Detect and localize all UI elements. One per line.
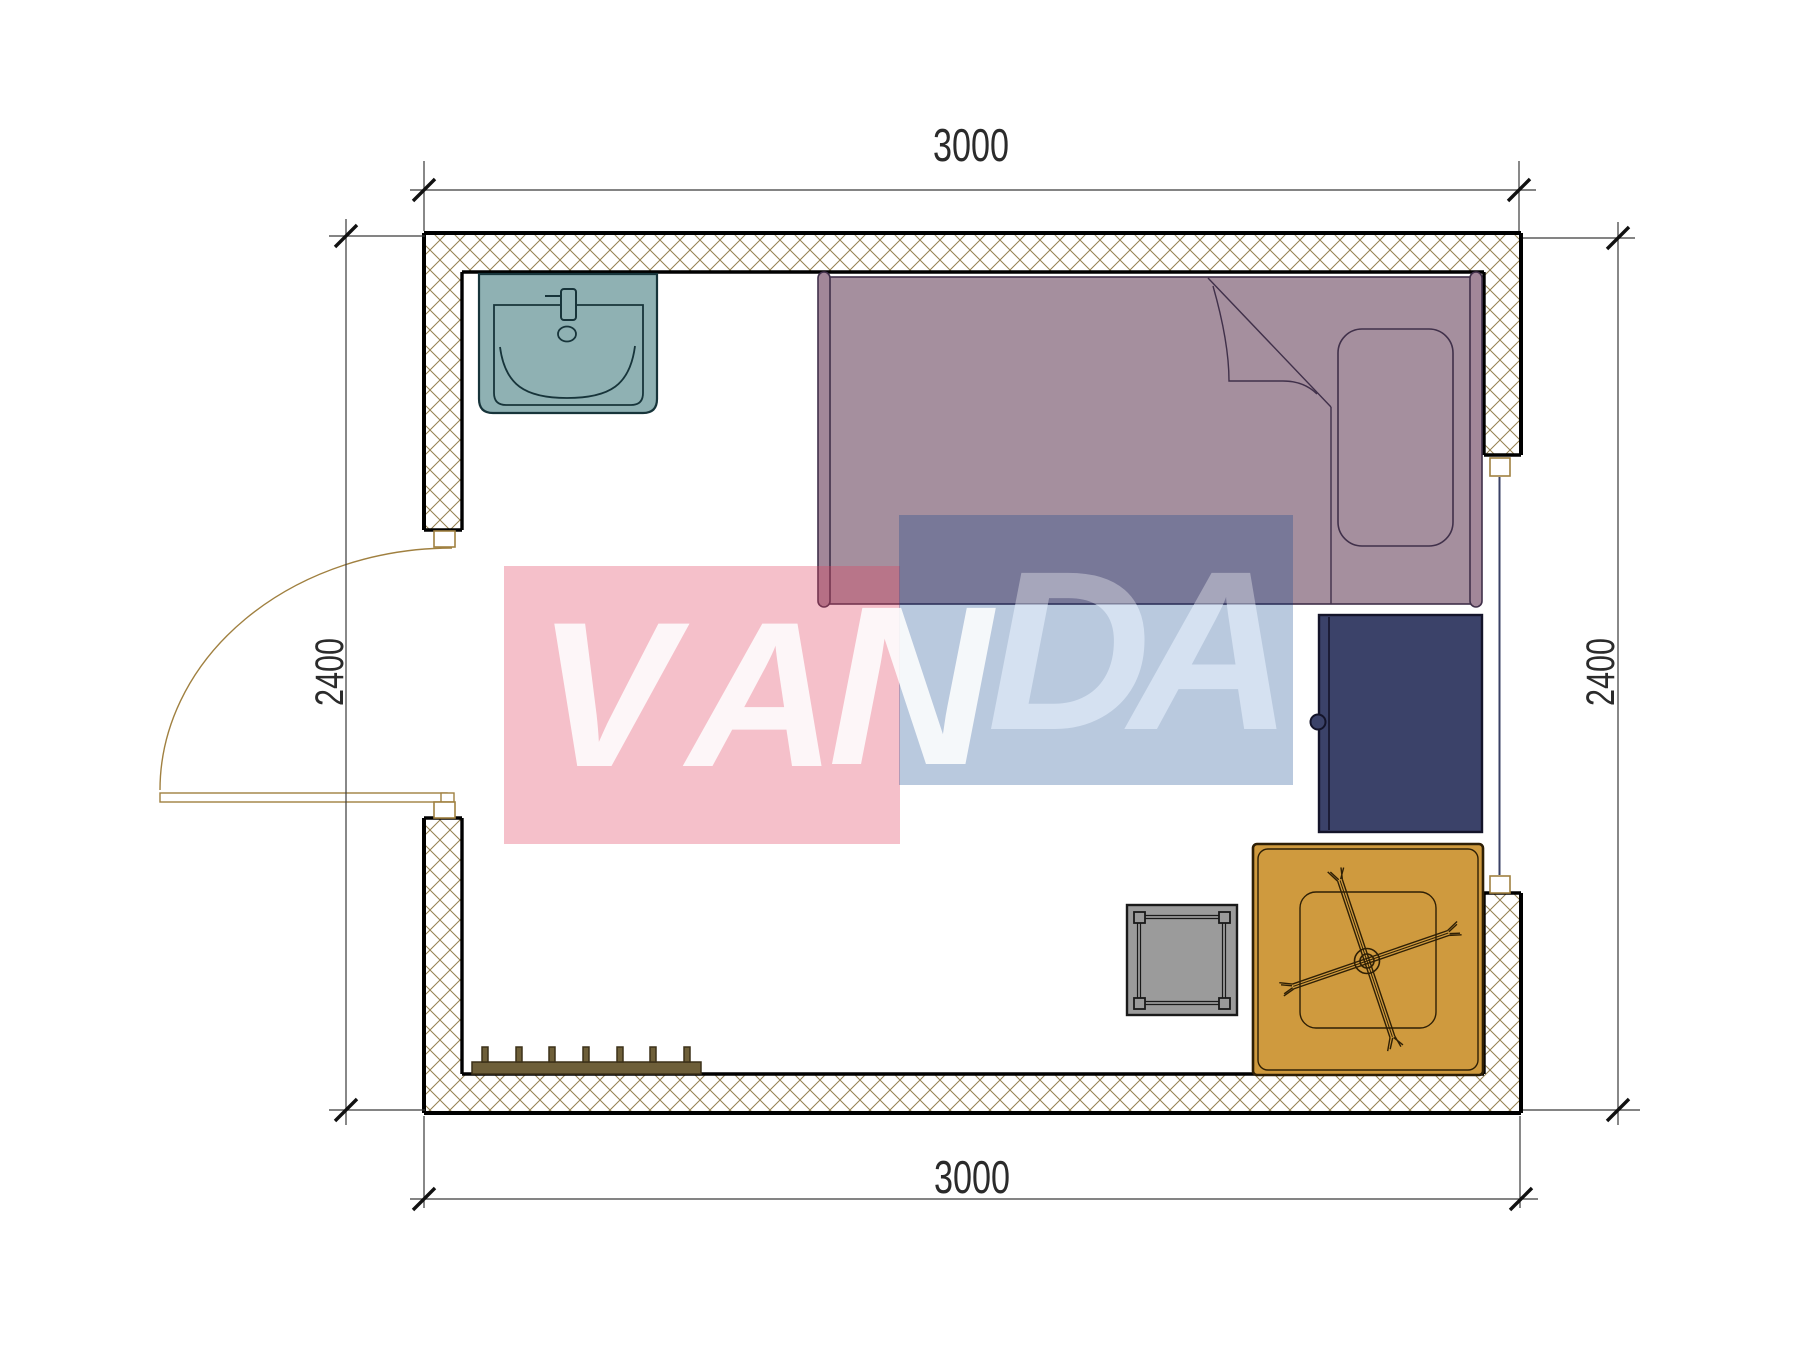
svg-text:A: A bbox=[682, 579, 837, 810]
svg-text:N: N bbox=[828, 560, 996, 813]
svg-text:3000: 3000 bbox=[934, 1151, 1010, 1203]
svg-text:V: V bbox=[537, 579, 690, 810]
svg-text:2400: 2400 bbox=[308, 638, 352, 706]
svg-text:3000: 3000 bbox=[933, 119, 1009, 171]
svg-text:2400: 2400 bbox=[1579, 638, 1623, 706]
